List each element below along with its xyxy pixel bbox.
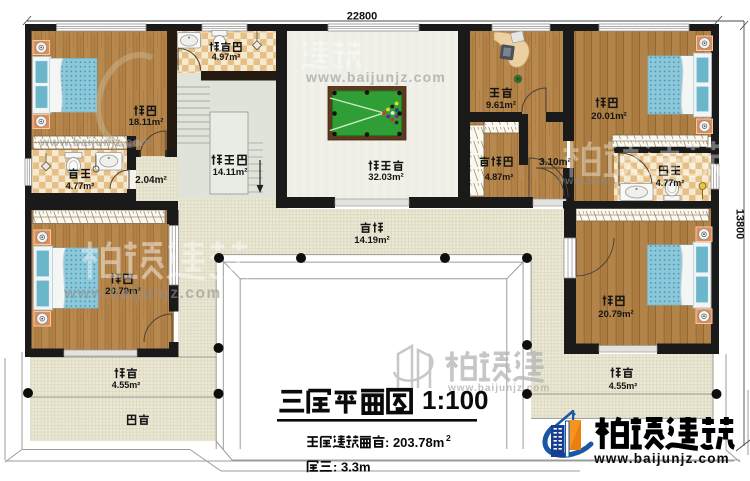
svg-text:: 3.3m: : 3.3m xyxy=(333,460,371,475)
svg-text:9.61m²: 9.61m² xyxy=(486,100,516,111)
svg-text:www.baiju: www.baiju xyxy=(555,175,617,187)
svg-text:2.04m²: 2.04m² xyxy=(135,175,167,186)
svg-text:4.97m²: 4.97m² xyxy=(212,52,241,62)
svg-text:4.55m²: 4.55m² xyxy=(609,381,638,391)
svg-text:: 203.78m: : 203.78m xyxy=(385,435,444,450)
svg-text:www.baijunjz.com: www.baijunjz.com xyxy=(593,451,730,466)
svg-text:4.77m²: 4.77m² xyxy=(656,178,685,188)
svg-text:32.03m²: 32.03m² xyxy=(368,172,403,183)
svg-text:18.11m²: 18.11m² xyxy=(129,117,164,128)
svg-text:14.19m²: 14.19m² xyxy=(354,235,389,246)
svg-text:22800: 22800 xyxy=(347,11,378,23)
svg-text:4.77m²: 4.77m² xyxy=(66,181,95,191)
svg-text:www.baijunjz.com: www.baijunjz.com xyxy=(39,135,152,149)
svg-text:www.baijunjz.com: www.baijunjz.com xyxy=(63,285,222,302)
svg-text:4.55m²: 4.55m² xyxy=(112,380,141,390)
svg-text:www.baijunjz.com: www.baijunjz.com xyxy=(305,69,446,85)
svg-text:www.baijunjz.com: www.baijunjz.com xyxy=(447,383,550,394)
svg-text:2: 2 xyxy=(446,433,451,443)
svg-text:13800: 13800 xyxy=(734,209,746,240)
svg-text:4.87m²: 4.87m² xyxy=(485,172,514,182)
svg-text:20.01m²: 20.01m² xyxy=(591,111,626,122)
svg-text:14.11m²: 14.11m² xyxy=(213,167,248,178)
svg-text:20.79m²: 20.79m² xyxy=(598,309,633,320)
